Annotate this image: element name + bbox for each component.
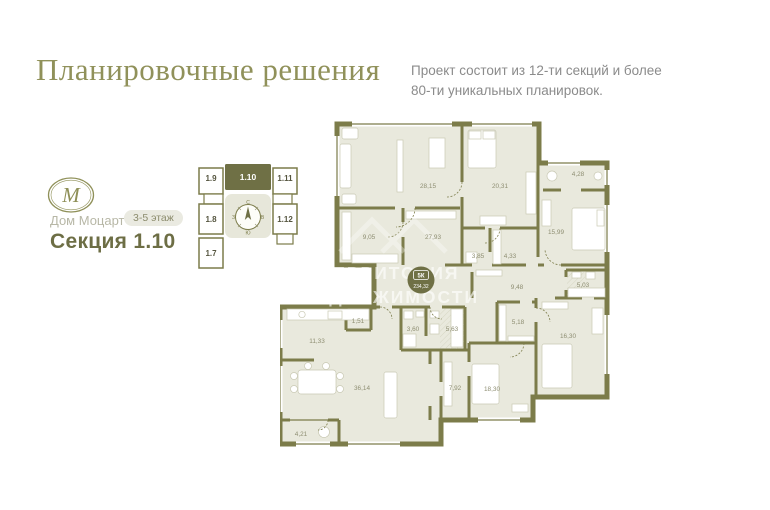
floorplan: ТЕРРИТОРИЯ НЕДВИЖИМОСТИ 28,15 20,31 4,28…	[280, 112, 614, 480]
sink	[416, 311, 424, 317]
room-area-bedroom-1: 20,31	[492, 183, 508, 190]
bed	[542, 344, 572, 388]
chair	[337, 386, 344, 393]
sofa	[340, 144, 351, 188]
pillow	[469, 131, 481, 139]
room-area-wardrobe-room: 9,05	[363, 234, 376, 241]
svg-text:1.7: 1.7	[205, 249, 217, 258]
chair	[291, 386, 298, 393]
room-area-corridor: 27,93	[425, 234, 441, 241]
svg-text:1.9: 1.9	[205, 174, 217, 183]
room-area-living-dining: 36,14	[354, 385, 370, 392]
shower	[403, 334, 416, 347]
room-area-bath-2: 5,03	[577, 282, 590, 289]
room-area-bath-3: 5,63	[446, 326, 459, 333]
unit-badge-type: 5К	[418, 274, 425, 280]
room-area-closet: 5,18	[512, 319, 525, 326]
apartment-footprint	[280, 124, 607, 444]
dining-table	[298, 370, 336, 394]
room-area-hall: 9,48	[511, 284, 524, 291]
page-title: Планировочные решения	[36, 52, 380, 88]
floors-badge: 3-5 этаж	[124, 210, 183, 226]
ottoman	[342, 194, 356, 204]
chair	[323, 363, 330, 370]
wardrobe	[542, 302, 568, 309]
compass: С Ю З В	[225, 194, 271, 238]
dresser	[480, 216, 506, 225]
compass-south: Ю	[245, 231, 250, 237]
kitchen-sink	[299, 311, 305, 317]
watermark-line-1: ТЕРРИТОРИЯ	[321, 263, 460, 283]
minimap-connector-left	[204, 194, 223, 204]
watermark-line-2: НЕДВИЖИМОСТИ	[301, 287, 479, 307]
plant	[594, 172, 602, 180]
sofa	[384, 372, 397, 418]
page-subtitle: Проект состоит из 12-ти секций и более 8…	[411, 61, 662, 102]
room-area-balcony-top: 4,28	[572, 171, 585, 178]
brand-logo: М	[46, 176, 96, 216]
console	[476, 270, 502, 276]
chair	[547, 171, 557, 181]
room-area-balcony-bottom: 4,21	[295, 431, 308, 438]
svg-text:1.10: 1.10	[240, 172, 257, 182]
pillow	[483, 131, 495, 139]
bed	[472, 364, 499, 404]
logo-letter: М	[61, 183, 81, 207]
room-area-storage: 4,33	[504, 253, 517, 260]
compass-west: З	[232, 215, 235, 221]
cabinet	[542, 200, 551, 226]
section-title: Секция 1.10	[50, 230, 175, 254]
toilet	[586, 272, 595, 279]
balcony-chair	[319, 427, 330, 438]
chair	[291, 373, 298, 380]
cabinet	[429, 138, 445, 168]
minimap-cell-1-9[interactable]: 1.9	[199, 168, 223, 194]
brand-name: Дом Моцарт	[50, 213, 125, 228]
room-area-bedroom-2: 15,99	[548, 229, 564, 236]
toilet	[404, 311, 413, 319]
room-area-kitchen: 11,33	[309, 338, 325, 345]
subtitle-line-2: 80-ти уникальных планировок.	[411, 81, 662, 101]
stove	[328, 311, 342, 319]
chair	[337, 373, 344, 380]
bathtub	[568, 288, 605, 297]
desk	[512, 404, 528, 412]
brochure-page: Планировочные решения Проект состоит из …	[0, 0, 770, 510]
room-area-bath-1: 3,85	[472, 253, 485, 260]
minimap-cell-1-8[interactable]: 1.8	[199, 204, 223, 234]
subtitle-line-1: Проект состоит из 12-ти секций и более	[411, 61, 662, 81]
shelving	[444, 362, 452, 406]
minimap-cell-1-10-selected[interactable]: 1.10	[225, 164, 271, 190]
shelving	[499, 305, 506, 341]
toilet	[430, 324, 439, 334]
shelving	[352, 254, 398, 263]
armchair	[342, 128, 358, 139]
console	[397, 140, 403, 192]
shelving	[508, 336, 534, 341]
wardrobe	[526, 172, 536, 214]
pillow	[597, 210, 604, 226]
sink	[572, 272, 581, 278]
chair	[305, 363, 312, 370]
room-area-living: 28,15	[420, 183, 436, 190]
room-area-bedroom-3: 16,30	[560, 333, 576, 340]
unit-badge-area: 234,32	[413, 284, 429, 290]
unit-badge: 5К 234,32	[408, 267, 435, 294]
svg-text:1.8: 1.8	[205, 215, 217, 224]
minimap-cell-1-7[interactable]: 1.7	[199, 238, 223, 268]
shelving	[493, 230, 501, 264]
room-area-wardrobe-2: 7,92	[449, 385, 462, 392]
compass-north: С	[246, 200, 250, 206]
room-area-wc: 3,60	[407, 326, 420, 333]
room-area-pantry: 1,51	[352, 318, 365, 325]
shelving	[342, 212, 351, 260]
room-area-bedroom-4: 18,30	[484, 386, 500, 393]
desk	[592, 308, 603, 334]
